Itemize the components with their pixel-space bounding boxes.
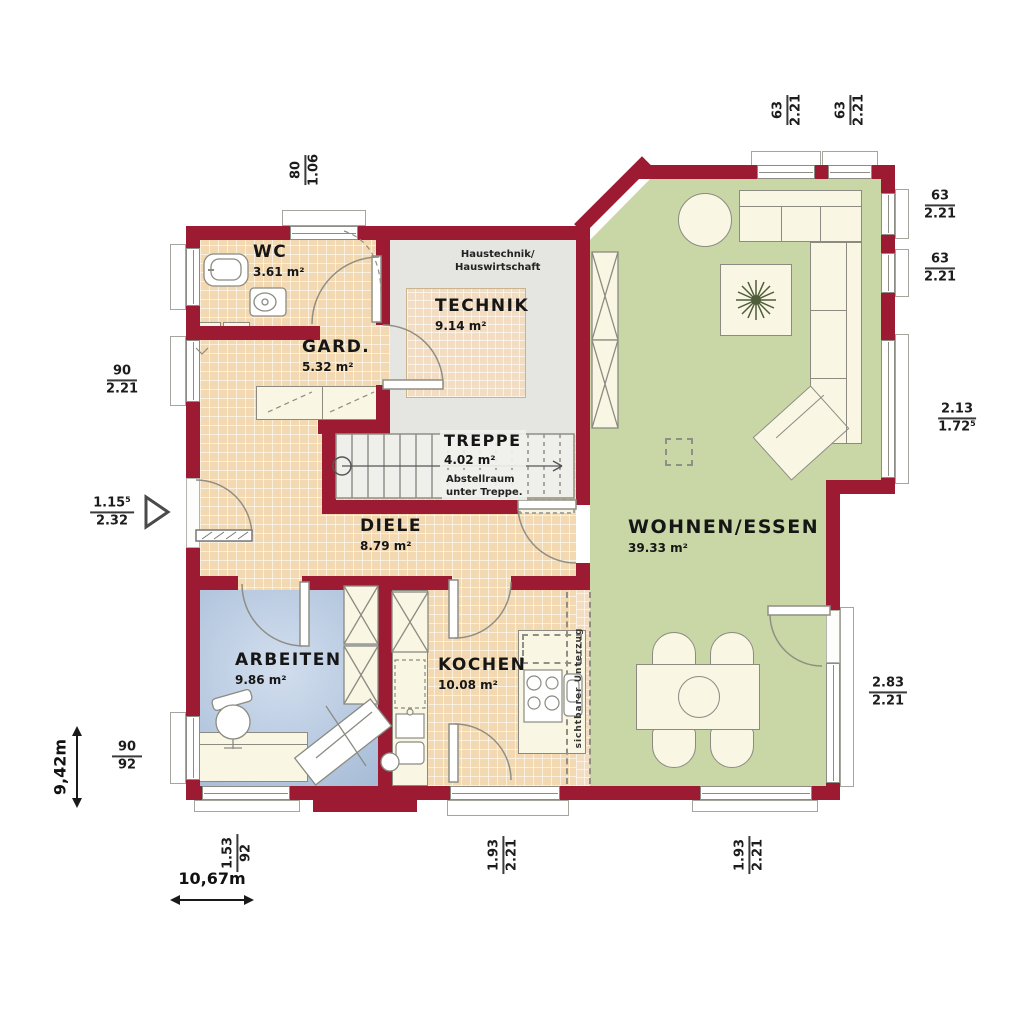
wall — [826, 494, 840, 610]
window — [826, 663, 840, 783]
island-hood-marker — [522, 634, 582, 664]
side-table — [678, 193, 732, 247]
dim-top-1: 632.21 — [770, 91, 803, 129]
desk-line — [198, 744, 308, 745]
entrance-arrow-icon — [146, 497, 168, 527]
wall — [881, 165, 895, 193]
sofa-cushion-line — [781, 206, 782, 242]
terrace-step — [447, 800, 569, 816]
wall-stair — [322, 500, 518, 514]
wall — [186, 226, 290, 240]
desk — [198, 732, 308, 782]
room-label-wohnen: WOHNEN/ESSEN39.33 m² — [628, 516, 819, 555]
window-sill — [895, 249, 909, 297]
overall-height-label: 9,42m — [51, 739, 70, 795]
window-sill — [170, 244, 186, 310]
dining-table-center — [678, 676, 720, 718]
window — [700, 786, 812, 800]
window — [186, 248, 200, 306]
room-label-gard: GARD.5.32 m² — [302, 337, 370, 374]
scale-arrow-vertical — [72, 726, 82, 808]
room-label-kochen: KOCHEN10.08 m² — [438, 655, 526, 692]
wall-kitchen — [378, 590, 392, 786]
wall-chimney — [313, 798, 417, 812]
wall-stair — [322, 434, 336, 500]
window — [202, 786, 290, 800]
window-sill — [282, 210, 366, 226]
dim-bottom-2: 1.932.21 — [732, 836, 765, 874]
wall-diele — [302, 576, 452, 590]
wall-diele — [186, 576, 238, 590]
window-sill — [895, 334, 909, 484]
beam-label: sichtbarer Unterzug — [574, 628, 584, 749]
wall — [186, 402, 200, 478]
wall-gard — [318, 420, 390, 434]
window — [186, 340, 200, 402]
treppe-note: Abstellraumunter Treppe. — [442, 472, 527, 500]
dim-bottom-0: 1.5392 — [220, 834, 253, 872]
wall — [576, 226, 590, 505]
patio-door-threshold — [826, 610, 840, 663]
sofa-cushion-line — [810, 378, 846, 379]
window-large — [881, 340, 895, 478]
dim-right-0: 632.21 — [921, 188, 959, 221]
room-label-arbeiten: ARBEITEN9.86 m² — [235, 650, 342, 687]
floor-plan: WC3.61 m² GARD.5.32 m² TECHNIK9.14 m² Ha… — [0, 0, 1024, 1024]
wall — [358, 226, 590, 240]
sofa-cushion-line — [820, 206, 821, 242]
sofa-cushion-line — [810, 310, 846, 311]
wall — [186, 786, 202, 800]
window — [881, 193, 895, 235]
sideboard-divider — [322, 386, 323, 420]
sofa-top — [739, 190, 862, 242]
wall-step — [826, 480, 895, 494]
wall — [815, 165, 828, 179]
overall-width-label: 10,67m — [178, 869, 245, 888]
wall — [186, 306, 200, 340]
room-label-wc: WC3.61 m² — [253, 242, 305, 279]
sofa-back-line — [846, 242, 847, 444]
window-sill — [170, 336, 186, 406]
window — [757, 165, 815, 179]
window — [828, 165, 872, 179]
wall — [186, 548, 200, 716]
dim-top-0: 801.06 — [288, 151, 321, 189]
window-sill — [194, 800, 300, 812]
wall — [881, 293, 895, 340]
dim-left-1: 1.15⁵2.32 — [90, 495, 134, 528]
window-sill — [895, 189, 909, 239]
window — [186, 716, 200, 780]
wall-technik — [376, 240, 390, 325]
window — [881, 253, 895, 293]
ceiling-marker — [665, 438, 693, 466]
dim-bottom-1: 1.932.21 — [486, 836, 519, 874]
window-sill — [692, 800, 818, 812]
beam-dashed-line — [589, 592, 591, 784]
window-sill — [840, 607, 854, 787]
dim-left-0: 902.21 — [103, 363, 141, 396]
dim-left-2: 9092 — [112, 739, 142, 772]
beam-dashed-line — [566, 592, 568, 784]
terrace-door — [450, 786, 560, 800]
room-label-technik: TECHNIK9.14 m² — [435, 296, 529, 333]
entrance-threshold — [186, 478, 200, 548]
wall — [638, 165, 757, 179]
window — [290, 226, 358, 240]
wall — [560, 786, 700, 800]
dim-top-2: 632.21 — [833, 91, 866, 129]
wall — [881, 235, 895, 253]
dim-right-1: 632.21 — [921, 251, 959, 284]
sofa-back-line — [739, 206, 862, 207]
window-sill — [170, 712, 186, 784]
scale-arrow-horizontal — [170, 895, 254, 905]
room-label-treppe: TREPPE4.02 m² — [440, 430, 526, 468]
wall — [812, 786, 840, 800]
rug — [720, 264, 792, 336]
dim-right-2: 2.131.72⁵ — [935, 401, 979, 434]
dim-right-3: 2.832.21 — [869, 675, 907, 708]
room-label-diele: DIELE8.79 m² — [360, 516, 422, 553]
wall-diele — [511, 576, 590, 590]
kitchen-counter — [392, 590, 428, 786]
technik-note: Haustechnik/Hauswirtschaft — [455, 248, 540, 274]
